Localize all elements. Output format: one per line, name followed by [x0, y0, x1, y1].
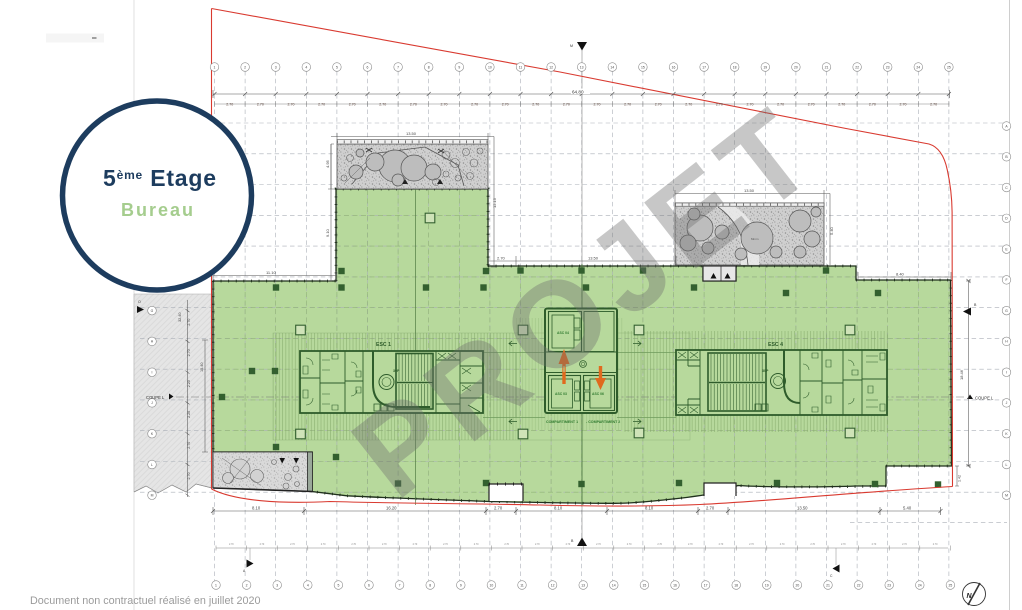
svg-text:15: 15 [643, 583, 647, 587]
svg-text:7: 7 [397, 65, 399, 69]
svg-text:2.70: 2.70 [187, 473, 191, 480]
svg-text:11: 11 [519, 65, 523, 69]
svg-text:17: 17 [704, 583, 708, 587]
svg-text:2.70: 2.70 [443, 543, 448, 546]
svg-text:2.70: 2.70 [841, 543, 846, 546]
svg-text:M: M [570, 44, 573, 48]
svg-text:10: 10 [490, 583, 494, 587]
svg-text:9: 9 [458, 65, 460, 69]
svg-text:2.70: 2.70 [497, 256, 506, 261]
svg-text:23: 23 [887, 583, 891, 587]
svg-text:12.15: 12.15 [492, 197, 497, 208]
svg-text:6: 6 [368, 583, 370, 587]
svg-text:19: 19 [763, 65, 767, 69]
svg-text:L: L [151, 463, 153, 467]
svg-text:15.40: 15.40 [200, 362, 204, 372]
svg-text:2.70: 2.70 [187, 442, 191, 449]
svg-text:2.70: 2.70 [930, 103, 937, 107]
svg-text:2.70: 2.70 [379, 103, 386, 107]
svg-text:2.70: 2.70 [535, 543, 540, 546]
svg-text:Bureau: Bureau [121, 200, 195, 220]
svg-text:2.70: 2.70 [494, 506, 503, 511]
svg-text:M: M [151, 494, 154, 498]
svg-text:10: 10 [488, 65, 492, 69]
svg-text:14: 14 [610, 65, 614, 69]
svg-text:2.70: 2.70 [900, 103, 907, 107]
svg-text:7: 7 [399, 583, 401, 587]
svg-text:8: 8 [428, 65, 430, 69]
svg-text:2.70: 2.70 [624, 103, 631, 107]
svg-text:2.70: 2.70 [351, 543, 356, 546]
svg-text:I: I [152, 371, 153, 375]
svg-text:24: 24 [916, 65, 920, 69]
svg-text:J: J [1006, 401, 1008, 405]
svg-text:21: 21 [826, 583, 830, 587]
svg-text:8.10: 8.10 [645, 506, 654, 511]
svg-text:2.70: 2.70 [838, 103, 845, 107]
svg-text:11.10: 11.10 [266, 270, 276, 275]
svg-text:COUPE L: COUPE L [975, 396, 994, 401]
svg-text:18: 18 [734, 583, 738, 587]
svg-text:2.70: 2.70 [349, 103, 356, 107]
svg-text:2.70: 2.70 [808, 103, 815, 107]
svg-text:2.70: 2.70 [502, 103, 509, 107]
svg-text:- COMPARTIMENT 2: - COMPARTIMENT 2 [586, 420, 620, 424]
svg-text:ESC 1: ESC 1 [376, 342, 391, 348]
svg-text:2.70: 2.70 [504, 543, 509, 546]
svg-text:2.70: 2.70 [810, 543, 815, 546]
svg-text:11: 11 [520, 583, 524, 587]
svg-text:13.50: 13.50 [406, 131, 417, 136]
svg-text:18: 18 [733, 65, 737, 69]
svg-text:2.70: 2.70 [596, 543, 601, 546]
svg-text:8.10: 8.10 [252, 506, 261, 511]
svg-text:2.70: 2.70 [532, 103, 539, 107]
svg-text:15: 15 [641, 65, 645, 69]
svg-text:2.70: 2.70 [749, 543, 754, 546]
svg-text:2.70: 2.70 [657, 543, 662, 546]
svg-text:2.70: 2.70 [566, 543, 571, 546]
svg-text:1: 1 [214, 65, 216, 69]
svg-text:G: G [1005, 309, 1008, 313]
svg-text:I: I [1006, 371, 1007, 375]
svg-text:14: 14 [612, 583, 616, 587]
svg-text:L: L [1006, 463, 1008, 467]
svg-text:5: 5 [336, 65, 338, 69]
svg-text:23: 23 [886, 65, 890, 69]
svg-text:25: 25 [949, 583, 953, 587]
svg-text:2.70: 2.70 [187, 349, 191, 356]
svg-text:1: 1 [215, 583, 217, 587]
svg-text:2.70: 2.70 [716, 103, 723, 107]
svg-text:8.40: 8.40 [896, 272, 905, 277]
svg-text:2.70: 2.70 [382, 543, 387, 546]
svg-text:4: 4 [305, 65, 307, 69]
svg-text:2.20: 2.20 [187, 411, 191, 418]
svg-text:16.20: 16.20 [386, 506, 397, 511]
svg-text:2: 2 [244, 65, 246, 69]
svg-text:COUPE L: COUPE L [146, 395, 165, 400]
svg-text:2.70: 2.70 [187, 319, 191, 326]
svg-text:64.80: 64.80 [572, 89, 584, 94]
svg-text:8.10: 8.10 [554, 506, 563, 511]
svg-text:M: M [1005, 494, 1008, 498]
svg-text:2.70: 2.70 [869, 103, 876, 107]
svg-text:22: 22 [857, 583, 861, 587]
svg-text:2.70: 2.70 [688, 543, 693, 546]
svg-text:2.70: 2.70 [706, 506, 715, 511]
svg-text:2.70: 2.70 [594, 103, 601, 107]
svg-text:22: 22 [855, 65, 859, 69]
svg-text:2.70: 2.70 [627, 543, 632, 546]
svg-text:1.42: 1.42 [958, 475, 962, 482]
svg-text:9.10: 9.10 [325, 228, 330, 237]
svg-text:F: F [1005, 278, 1007, 282]
svg-text:ESC 4: ESC 4 [768, 342, 783, 348]
svg-text:2.70: 2.70 [290, 543, 295, 546]
svg-text:5.40: 5.40 [829, 226, 834, 235]
svg-text:2.70: 2.70 [933, 543, 938, 546]
svg-text:2.70: 2.70 [780, 543, 785, 546]
svg-text:Document non contractuel réali: Document non contractuel réalisé en juil… [30, 595, 260, 607]
svg-text:2.70: 2.70 [872, 543, 877, 546]
svg-text:2.70: 2.70 [321, 543, 326, 546]
svg-text:2.70: 2.70 [563, 103, 570, 107]
svg-text:2.70: 2.70 [413, 543, 418, 546]
svg-text:20: 20 [796, 583, 800, 587]
svg-text:2.70: 2.70 [685, 103, 692, 107]
svg-text:2.70: 2.70 [318, 103, 325, 107]
svg-text:4: 4 [307, 583, 309, 587]
svg-text:6: 6 [367, 65, 369, 69]
svg-text:32.40: 32.40 [178, 312, 182, 322]
svg-text:2.70: 2.70 [229, 543, 234, 546]
svg-text:13.50: 13.50 [797, 506, 808, 511]
svg-text:19: 19 [765, 583, 769, 587]
svg-text:8: 8 [429, 583, 431, 587]
svg-text:18.46: 18.46 [959, 369, 964, 380]
svg-text:21: 21 [825, 65, 829, 69]
svg-text:2.70: 2.70 [441, 103, 448, 107]
svg-text:COMPARTIMENT 1: COMPARTIMENT 1 [546, 420, 578, 424]
svg-text:20: 20 [794, 65, 798, 69]
svg-text:4.95: 4.95 [325, 159, 330, 168]
svg-text:9: 9 [460, 583, 462, 587]
svg-text:2.70: 2.70 [288, 103, 295, 107]
svg-text:2.70: 2.70 [474, 543, 479, 546]
svg-text:J: J [151, 401, 153, 405]
svg-text:2: 2 [246, 583, 248, 587]
svg-text:3: 3 [276, 583, 278, 587]
svg-text:2.70: 2.70 [257, 103, 264, 107]
svg-text:ASC 06: ASC 06 [592, 392, 604, 396]
svg-text:17: 17 [702, 65, 706, 69]
svg-text:2.20: 2.20 [187, 380, 191, 387]
svg-text:2.70: 2.70 [719, 543, 724, 546]
svg-text:2.70: 2.70 [902, 543, 907, 546]
svg-text:13: 13 [581, 583, 585, 587]
svg-text:2.70: 2.70 [410, 103, 417, 107]
svg-text:G: G [151, 309, 154, 313]
svg-text:5.40: 5.40 [903, 506, 912, 511]
svg-text:16: 16 [673, 583, 677, 587]
svg-text:16: 16 [672, 65, 676, 69]
svg-text:2.70: 2.70 [226, 103, 233, 107]
svg-text:30P: 30P [762, 369, 769, 373]
svg-text:3: 3 [275, 65, 277, 69]
svg-text:13: 13 [580, 65, 584, 69]
svg-text:O: O [138, 300, 141, 304]
svg-text:12: 12 [549, 65, 553, 69]
svg-text:2.70: 2.70 [471, 103, 478, 107]
svg-text:2.70: 2.70 [260, 543, 265, 546]
svg-text:12: 12 [551, 583, 555, 587]
svg-text:5: 5 [337, 583, 339, 587]
svg-text:24: 24 [918, 583, 922, 587]
svg-text:2.70: 2.70 [655, 103, 662, 107]
svg-text:25: 25 [947, 65, 951, 69]
